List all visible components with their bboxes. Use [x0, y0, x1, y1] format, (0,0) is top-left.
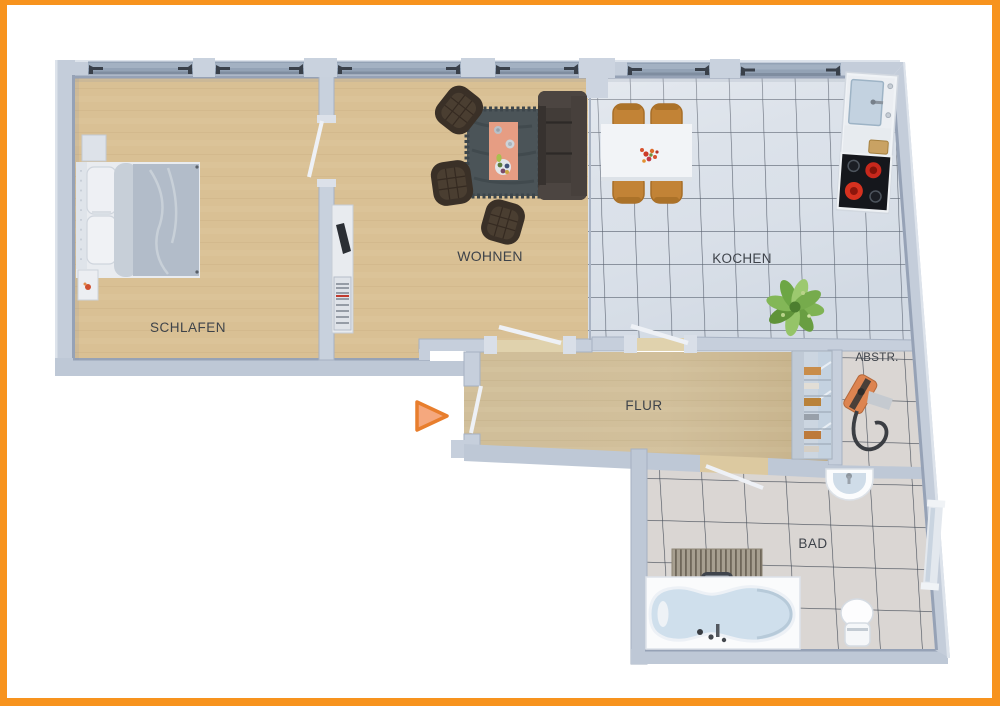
svg-text:FLUR: FLUR	[625, 398, 662, 413]
svg-text:BAD: BAD	[798, 536, 827, 551]
svg-text:WOHNEN: WOHNEN	[457, 248, 523, 264]
svg-text:ABSTR.: ABSTR.	[855, 352, 898, 364]
svg-text:SCHLAFEN: SCHLAFEN	[150, 320, 226, 335]
svg-text:KOCHEN: KOCHEN	[712, 251, 772, 266]
